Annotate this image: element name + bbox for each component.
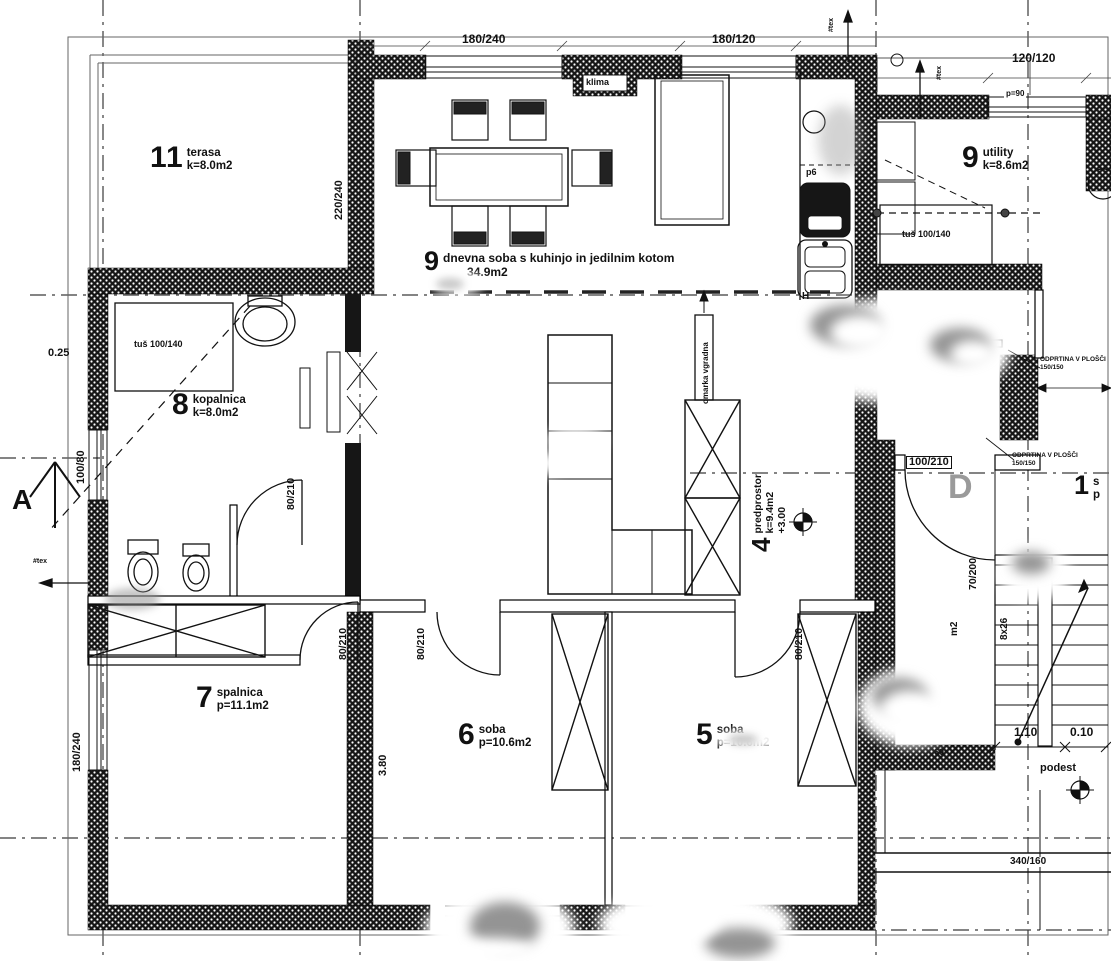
dim-stair-run2: 0.10 (1070, 726, 1093, 738)
room-area: p=10.6m2 (717, 737, 770, 750)
room-name: utility (983, 147, 1029, 160)
interior-walls (345, 294, 361, 600)
floor-plan: 180/240 180/120 120/120 p=90 11 terasak=… (0, 0, 1111, 961)
dim-window-utility: 120/120 (1012, 52, 1055, 64)
flue-label-1: #tex (828, 18, 835, 32)
room-name: kopalnica (193, 394, 246, 407)
level-marker-podest (1066, 776, 1094, 804)
living-furniture (396, 75, 729, 594)
dim-window-stair: 70/200 (968, 558, 979, 590)
room-area: k=8.6m2 (983, 160, 1029, 173)
dim-room6-depth: 3.80 (378, 755, 389, 776)
d-marker: D (948, 470, 973, 504)
room-name: terasa (187, 147, 233, 160)
shower-utility-label: tuš 100/140 (902, 230, 951, 239)
room-name: s (1093, 476, 1100, 489)
windows (89, 56, 1086, 928)
cabinet-note-label: omarka vgradna (702, 342, 710, 404)
room-area: k=8.0m2 (193, 407, 246, 420)
room-number: 6 (458, 720, 476, 750)
room-label-utility: 9 utilityk=8.6m2 (962, 143, 1028, 173)
p6-label: p6 (806, 168, 817, 177)
section-arrow-a (30, 462, 80, 528)
room-name: predprostor (752, 474, 764, 534)
room-number: 7 (196, 683, 214, 713)
room-name: soba (479, 724, 532, 737)
dim-window-top-2: 180/120 (712, 33, 755, 45)
dim-stair-steps: 8x26 (1000, 618, 1010, 640)
room-name: dnevna soba s kuhinjo in jedilnim kotom (443, 252, 674, 266)
room-label-stopnisce: 1 sp (1074, 472, 1100, 502)
room-area: p=11.1m2 (217, 700, 269, 713)
room-label-living: 9 dnevna soba s kuhinjo in jedilnim koto… (424, 248, 674, 280)
flue-label-3: #tex (33, 558, 47, 565)
opening-note-2-line1: ODPRTINA V PLOŠČI (1012, 452, 1078, 460)
room-number: 8 (172, 390, 190, 420)
room-area: k=8.0m2 (187, 160, 233, 173)
room-label-predprostor: 4 predprostor k=9.4m2 +3.00 (748, 474, 788, 552)
shower-bath-label: tuš 100/140 (134, 340, 183, 349)
room-label-terasa: 11 terasak=8.0m2 (150, 143, 232, 173)
room-area: k=9.4m2 (764, 474, 776, 534)
room-name: spalnica (217, 687, 269, 700)
dim-wall-bottom-right: 340/160 (1008, 857, 1048, 867)
dim-offset-left: 0.25 (48, 348, 69, 359)
room-area: p=10.6m2 (479, 737, 532, 750)
opening-note-1-line1: ODPRTINA V PLOŠČI (1040, 356, 1106, 364)
room-number: 4 (748, 537, 774, 552)
room-number: 1 (1074, 472, 1090, 499)
klima-label: klima (586, 78, 609, 87)
flue-label-2: #tex (936, 66, 943, 80)
flue-arrows (40, 11, 924, 587)
opening-note-2-line2: 150/150 (1012, 460, 1078, 468)
parapet-label: p=90 (1004, 90, 1026, 98)
room-level: +3.00 (776, 474, 788, 534)
dim-door-room5: 80/210 (794, 628, 805, 660)
room-label-soba5: 5 sobap=10.6m2 (696, 720, 769, 750)
dim-stair-run: 1.10 (1014, 726, 1037, 738)
dim-window-top-1: 180/240 (462, 33, 505, 45)
dim-window-left: 100/80 (76, 450, 87, 484)
dim-door-right: 100/210 (906, 456, 952, 469)
level-marker-predprostor (789, 508, 817, 536)
room-label-spalnica: 7 spalnicap=11.1m2 (196, 683, 269, 713)
dim-window-left-2: 180/240 (72, 732, 83, 772)
opening-note-2: ODPRTINA V PLOŠČI 150/150 (1012, 452, 1078, 468)
dim-door-room6: 80/210 (416, 628, 427, 660)
dim-door-bath: 80/210 (286, 478, 297, 510)
h-marker: H (802, 292, 809, 302)
dim-60: 60 (934, 748, 944, 757)
section-a-label: A (12, 486, 32, 514)
room-area: 34.9m2 (443, 266, 674, 280)
podest-label: podest (1040, 763, 1076, 774)
room-number: 5 (696, 720, 714, 750)
opening-note-1: ODPRTINA V PLOŠČI 150/150 (1040, 356, 1106, 372)
room-number: 9 (424, 248, 440, 275)
dim-stair-m2: m2 (950, 622, 960, 636)
room-label-kopalnica: 8 kopalnicak=8.0m2 (172, 390, 246, 420)
room-number: 9 (962, 143, 980, 173)
dimension-lines (356, 41, 1111, 83)
room-number: 11 (150, 143, 184, 173)
room-label-soba6: 6 sobap=10.6m2 (458, 720, 531, 750)
room-area: p (1093, 489, 1100, 502)
room-name: soba (717, 724, 770, 737)
opening-note-1-line2: 150/150 (1040, 364, 1106, 372)
partition-walls (88, 290, 1043, 905)
dim-door-room7: 80/210 (338, 628, 349, 660)
stairs (875, 555, 1111, 930)
dim-terasa-wall: 220/240 (334, 180, 345, 220)
